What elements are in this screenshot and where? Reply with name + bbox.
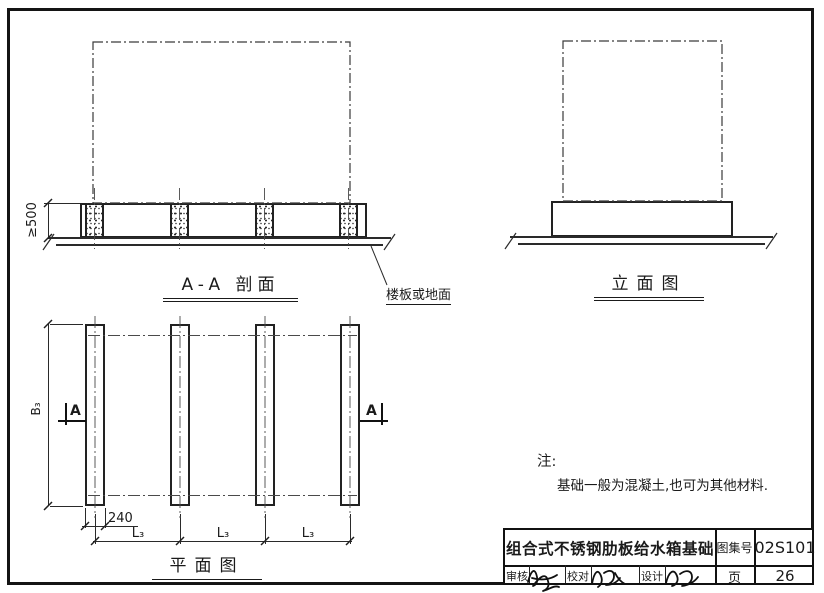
plan-strip-2	[170, 324, 190, 506]
section-view-title: A-A 剖面	[163, 270, 298, 302]
plan-L3-ext-2	[180, 514, 181, 544]
plan-view-title: 平面图	[152, 551, 262, 583]
plan-240-ext-left	[85, 508, 86, 528]
plan-L3-dim-label-1: L₃	[118, 526, 158, 541]
concrete-strip-section-3	[255, 203, 274, 238]
section-foundation-band	[80, 203, 367, 238]
atlas-number-label: 图集号	[715, 530, 754, 565]
sign-row-divider-3	[591, 565, 592, 583]
atlas-number-value: 02S101	[754, 530, 816, 565]
concrete-strip-section-4	[339, 203, 358, 238]
plan-width-dim-ext-bottom	[50, 506, 83, 507]
plan-strip-4	[340, 324, 360, 506]
plan-240-ext-right	[105, 508, 106, 528]
section-height-dim-label: ≥500	[26, 197, 40, 243]
plan-strip-1	[85, 324, 105, 506]
title-block: 组合式不锈钢肋板给水箱基础 图集号 02S101 审核 校对 设计 页 26	[503, 528, 814, 585]
design-label: 设计	[639, 565, 665, 587]
plan-L3-dim-label-2: L₃	[203, 526, 243, 541]
notes-heading: 注:	[537, 450, 556, 471]
plan-240-dim-label: 240	[108, 511, 133, 526]
page-number: 26	[754, 565, 816, 587]
page-label: 页	[715, 565, 754, 587]
elevation-ground-line-bottom	[518, 243, 765, 245]
plan-width-dim-label: B₃	[29, 387, 43, 431]
section-ground-line-bottom	[56, 244, 383, 246]
drawing-sheet: ≥500 A-A 剖面 楼板或地面 立面图 B₃ A A 240	[0, 0, 824, 593]
elevation-view-title: 立面图	[594, 269, 704, 301]
concrete-strip-section-1	[85, 203, 104, 238]
plan-L3-ext-3	[265, 514, 266, 544]
section-height-dim-extension	[44, 203, 80, 204]
notes-body: 基础一般为混凝土,也可为其他材料.	[557, 474, 768, 494]
plan-L3-ext-1	[95, 514, 96, 544]
plan-L3-dim-label-3: L₃	[288, 526, 328, 541]
plan-L3-dim-line	[93, 541, 352, 542]
drawing-title-cell: 组合式不锈钢肋板给水箱基础	[505, 530, 715, 565]
plan-width-dim-line	[48, 324, 49, 506]
concrete-strip-section-2	[170, 203, 189, 238]
review-label: 审核	[505, 565, 529, 587]
elevation-foundation	[551, 201, 733, 237]
sign-row-divider-5	[665, 565, 666, 583]
elevation-ground-line-top	[510, 236, 773, 238]
plan-strip-3	[255, 324, 275, 506]
section-height-dim-line	[48, 203, 49, 239]
section-mark-right-label: A	[366, 403, 377, 419]
section-ground-line-top	[48, 237, 391, 239]
section-mark-left-label: A	[70, 403, 81, 419]
floor-or-ground-label: 楼板或地面	[386, 284, 451, 305]
plan-width-dim-ext-top	[50, 324, 83, 325]
plan-L3-ext-4	[350, 514, 351, 544]
check-label: 校对	[565, 565, 591, 587]
sign-row-divider-1	[529, 565, 530, 583]
